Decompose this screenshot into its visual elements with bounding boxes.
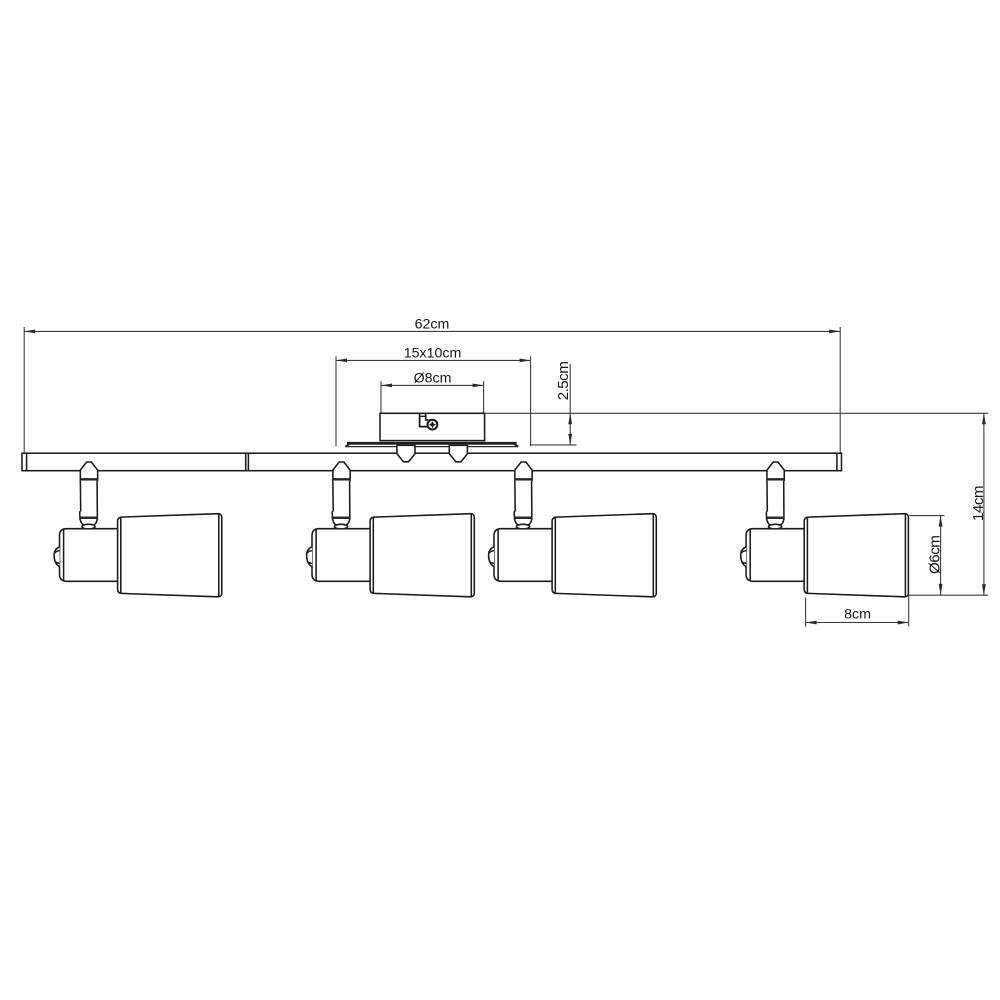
svg-text:14cm: 14cm [970,486,987,521]
svg-text:62cm: 62cm [415,317,450,333]
svg-text:Ø8cm: Ø8cm [414,371,452,387]
svg-text:8cm: 8cm [844,607,871,623]
svg-text:15x10cm: 15x10cm [404,346,462,362]
svg-text:Ø6cm: Ø6cm [926,536,943,574]
svg-text:2.5cm: 2.5cm [555,362,572,401]
